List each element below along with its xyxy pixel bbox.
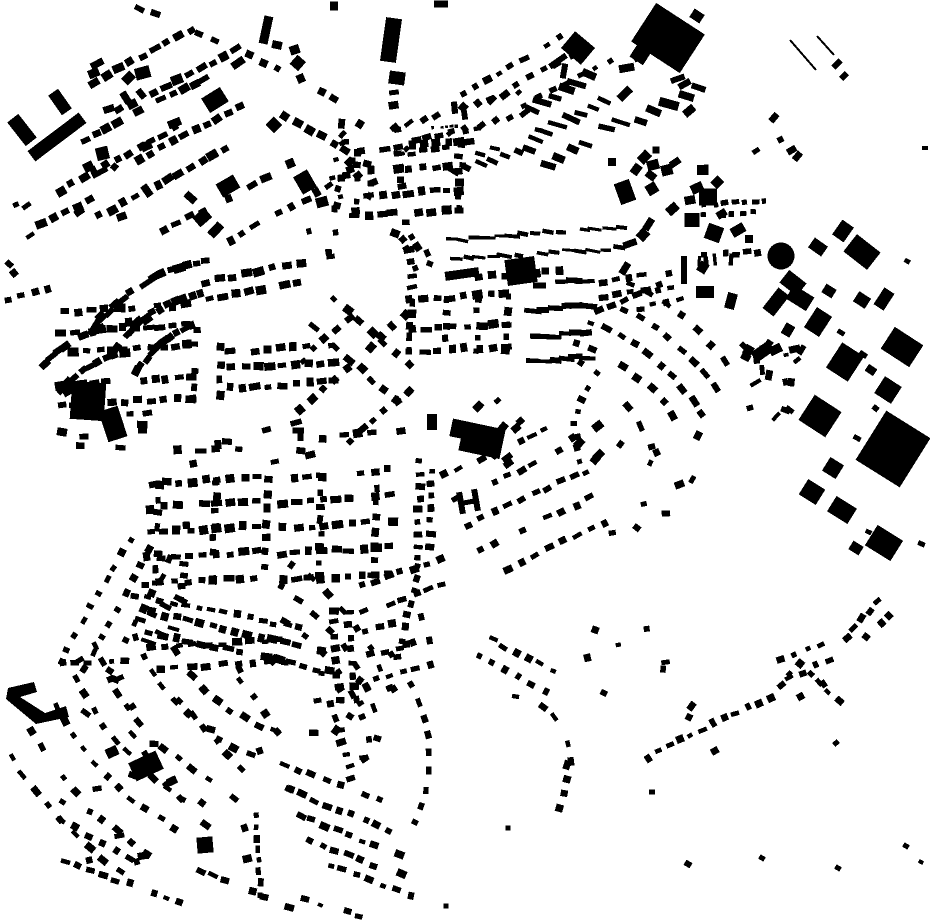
building	[349, 157, 355, 163]
building	[281, 659, 289, 665]
building	[433, 348, 441, 354]
building	[289, 342, 297, 351]
building	[396, 427, 406, 435]
building	[307, 377, 314, 386]
building	[231, 289, 241, 298]
building	[431, 138, 440, 146]
building	[97, 347, 105, 353]
building	[296, 259, 306, 268]
building	[426, 748, 432, 756]
building	[444, 904, 449, 909]
building	[427, 414, 437, 430]
building	[344, 621, 353, 628]
building	[262, 534, 271, 541]
building	[732, 199, 740, 205]
building	[434, 1, 448, 8]
building	[290, 550, 300, 555]
building	[488, 290, 495, 297]
building	[309, 525, 316, 531]
building	[275, 343, 286, 352]
building	[264, 384, 271, 390]
building	[74, 308, 83, 317]
building	[787, 378, 795, 387]
building	[254, 824, 259, 830]
building	[440, 126, 443, 129]
building	[459, 162, 466, 167]
building	[199, 577, 206, 584]
building	[225, 474, 235, 484]
building	[115, 445, 126, 451]
building	[336, 697, 345, 704]
building	[367, 165, 374, 174]
building	[4, 297, 12, 304]
building	[732, 252, 740, 258]
building	[130, 593, 139, 600]
building	[367, 429, 377, 435]
building	[455, 124, 458, 128]
building	[170, 665, 178, 670]
building	[409, 299, 415, 307]
building	[502, 322, 511, 328]
building	[665, 270, 673, 278]
building	[152, 565, 158, 573]
building	[504, 333, 510, 339]
building	[193, 260, 201, 267]
building	[253, 362, 263, 370]
building	[232, 638, 243, 646]
building	[352, 428, 363, 438]
building	[239, 521, 247, 530]
building	[456, 205, 462, 212]
building	[278, 523, 286, 531]
building	[743, 248, 752, 255]
building	[297, 433, 303, 441]
building	[391, 191, 401, 200]
building	[406, 258, 414, 265]
building	[252, 524, 261, 529]
building	[84, 660, 92, 665]
building	[417, 186, 425, 196]
building	[68, 347, 79, 356]
building	[685, 213, 700, 227]
building	[393, 654, 401, 660]
building	[443, 188, 450, 193]
building	[752, 199, 760, 204]
building	[370, 542, 378, 547]
building	[191, 383, 198, 391]
building	[316, 360, 325, 368]
building	[464, 324, 471, 329]
building	[759, 365, 765, 375]
building	[191, 341, 198, 347]
building	[388, 517, 398, 526]
building	[188, 528, 195, 533]
building	[109, 659, 114, 664]
building	[454, 168, 462, 175]
building	[636, 306, 645, 312]
building	[375, 623, 384, 630]
building	[331, 634, 339, 640]
building	[216, 390, 225, 400]
building	[262, 639, 269, 644]
building	[264, 476, 273, 483]
building	[211, 508, 219, 513]
building	[225, 498, 236, 507]
building	[428, 492, 434, 498]
building	[459, 292, 467, 300]
building	[218, 642, 226, 647]
building	[344, 495, 353, 503]
building	[125, 317, 133, 327]
building	[488, 271, 497, 279]
building	[349, 520, 356, 527]
building	[161, 644, 169, 651]
building	[174, 394, 181, 402]
building	[228, 274, 237, 282]
building	[426, 517, 433, 523]
building	[414, 555, 420, 561]
building	[178, 583, 186, 589]
building	[255, 285, 267, 295]
building	[434, 295, 442, 301]
building	[120, 657, 129, 664]
building	[277, 499, 289, 508]
building	[226, 363, 235, 371]
building	[354, 199, 360, 205]
building	[444, 296, 450, 303]
building	[292, 279, 301, 287]
building	[360, 544, 369, 554]
building	[185, 553, 193, 559]
building	[723, 250, 729, 257]
building	[407, 152, 416, 157]
building	[754, 249, 762, 257]
building	[488, 344, 497, 353]
building	[216, 375, 222, 383]
building	[328, 358, 340, 367]
building	[127, 411, 134, 416]
building	[154, 550, 163, 557]
building	[317, 490, 323, 497]
building	[598, 294, 608, 301]
building	[173, 445, 182, 454]
building	[315, 572, 324, 579]
building	[296, 447, 306, 455]
building	[608, 158, 616, 166]
building	[208, 576, 217, 585]
building	[455, 191, 461, 199]
building	[393, 150, 402, 157]
building	[473, 348, 479, 354]
building	[441, 205, 452, 215]
building	[274, 636, 282, 642]
building	[224, 523, 236, 533]
building	[454, 153, 463, 159]
building	[250, 575, 258, 582]
building	[365, 211, 373, 220]
building	[316, 378, 327, 385]
building	[106, 325, 117, 333]
building	[222, 438, 233, 445]
building	[427, 504, 434, 512]
building	[419, 349, 431, 355]
building	[261, 520, 270, 530]
building	[212, 523, 219, 530]
building	[76, 442, 84, 449]
building	[625, 274, 632, 282]
building	[394, 126, 402, 133]
building	[318, 531, 324, 536]
building	[384, 465, 391, 472]
building	[264, 504, 271, 513]
building	[142, 582, 149, 588]
building	[423, 787, 429, 794]
building	[245, 637, 255, 644]
building	[325, 249, 332, 255]
building	[379, 191, 388, 200]
building	[152, 580, 160, 586]
building	[203, 642, 213, 649]
building	[406, 322, 413, 330]
building	[662, 510, 671, 516]
building	[238, 384, 246, 393]
building	[159, 529, 168, 535]
building	[235, 575, 244, 584]
building	[468, 236, 484, 240]
building	[187, 663, 198, 670]
building	[198, 525, 208, 535]
building	[338, 119, 346, 129]
building	[79, 434, 88, 440]
building	[60, 308, 69, 314]
building	[374, 468, 380, 475]
building	[263, 345, 271, 353]
building	[168, 322, 176, 328]
building	[212, 480, 219, 486]
building	[359, 572, 366, 579]
building	[649, 790, 655, 795]
building	[261, 564, 269, 570]
building	[83, 348, 91, 354]
building	[406, 333, 412, 341]
building	[455, 179, 464, 187]
building	[216, 343, 224, 351]
building	[291, 474, 299, 483]
building	[227, 383, 234, 391]
building	[345, 573, 351, 579]
building	[429, 469, 435, 474]
building	[119, 348, 131, 358]
building	[238, 498, 249, 506]
building	[186, 374, 196, 381]
building	[55, 329, 66, 336]
building	[419, 163, 427, 171]
building	[249, 659, 256, 667]
building	[315, 543, 324, 551]
building	[745, 235, 753, 243]
building	[255, 846, 260, 853]
building	[506, 826, 511, 831]
building	[147, 398, 157, 405]
building	[506, 294, 511, 300]
building	[419, 139, 428, 148]
building	[371, 527, 379, 537]
building	[261, 547, 268, 555]
building	[349, 672, 356, 680]
building	[473, 307, 479, 313]
building	[305, 546, 312, 555]
building	[331, 520, 343, 530]
building	[294, 524, 305, 532]
map-background	[0, 0, 930, 924]
building	[402, 219, 410, 225]
building	[155, 480, 165, 489]
building	[202, 475, 211, 484]
building	[252, 498, 261, 504]
building	[740, 211, 747, 217]
building	[660, 665, 666, 673]
building	[133, 396, 142, 403]
building	[721, 212, 726, 218]
building	[307, 498, 314, 504]
building	[386, 209, 397, 217]
building	[250, 348, 259, 356]
building	[761, 198, 766, 204]
building	[146, 643, 157, 652]
building	[600, 248, 611, 252]
building	[128, 305, 136, 312]
building	[541, 268, 549, 275]
building	[349, 682, 359, 690]
building	[182, 521, 190, 529]
building	[667, 285, 674, 290]
building	[504, 307, 513, 317]
building	[319, 435, 327, 443]
building	[653, 147, 660, 154]
building	[501, 348, 510, 354]
building	[354, 149, 361, 157]
building	[537, 307, 550, 314]
building	[405, 166, 412, 173]
building	[430, 187, 441, 193]
building	[253, 812, 259, 818]
building	[450, 257, 463, 261]
building	[720, 199, 728, 206]
building	[256, 857, 261, 863]
building	[119, 323, 126, 331]
building	[331, 656, 340, 665]
building	[397, 177, 404, 183]
building	[339, 432, 349, 438]
building	[348, 635, 354, 641]
building	[159, 396, 167, 404]
building	[56, 427, 67, 437]
building	[147, 529, 155, 535]
building	[445, 125, 448, 128]
building	[426, 767, 432, 775]
building	[224, 347, 235, 354]
building	[530, 231, 541, 236]
building	[475, 294, 482, 303]
building	[388, 101, 399, 110]
building	[331, 205, 337, 212]
building	[121, 399, 129, 406]
building	[209, 534, 216, 541]
building	[418, 295, 429, 303]
building	[332, 545, 343, 552]
building	[541, 335, 561, 340]
building	[414, 519, 420, 525]
figure-ground-map-stage	[0, 0, 930, 924]
building	[213, 492, 221, 501]
building	[701, 252, 707, 257]
building	[421, 327, 432, 333]
building	[252, 474, 261, 479]
building	[415, 483, 425, 491]
building	[171, 578, 178, 583]
building	[326, 254, 335, 260]
building	[291, 499, 303, 505]
building	[431, 126, 434, 129]
building	[138, 426, 147, 434]
building	[367, 180, 374, 186]
building	[357, 470, 365, 476]
building	[199, 500, 211, 507]
building	[189, 459, 198, 468]
building	[264, 362, 276, 371]
building	[367, 572, 376, 578]
building	[172, 526, 180, 535]
building	[211, 445, 220, 452]
building	[751, 209, 757, 214]
building	[570, 421, 577, 426]
building	[555, 266, 563, 275]
building	[161, 375, 169, 384]
building	[504, 256, 537, 286]
building	[415, 458, 422, 464]
building	[241, 474, 249, 482]
building	[140, 377, 148, 385]
figure-ground-svg	[0, 0, 930, 924]
building	[241, 268, 253, 278]
building	[195, 448, 207, 453]
building	[149, 740, 158, 747]
building	[457, 141, 465, 148]
building	[413, 531, 422, 537]
building	[445, 138, 452, 146]
building	[293, 380, 300, 386]
building	[407, 309, 416, 318]
building	[214, 274, 225, 282]
building	[316, 515, 323, 524]
building	[236, 649, 243, 656]
building	[175, 480, 182, 487]
building	[442, 334, 449, 342]
building	[414, 208, 424, 217]
building	[277, 383, 288, 390]
building	[729, 211, 735, 217]
building	[560, 790, 568, 798]
building	[697, 165, 709, 176]
building	[58, 401, 67, 408]
building	[696, 286, 714, 298]
building	[291, 360, 301, 370]
building	[426, 208, 437, 217]
building	[699, 189, 717, 206]
building	[406, 347, 411, 354]
building	[450, 125, 454, 128]
gasometer-circle-building	[768, 243, 795, 270]
